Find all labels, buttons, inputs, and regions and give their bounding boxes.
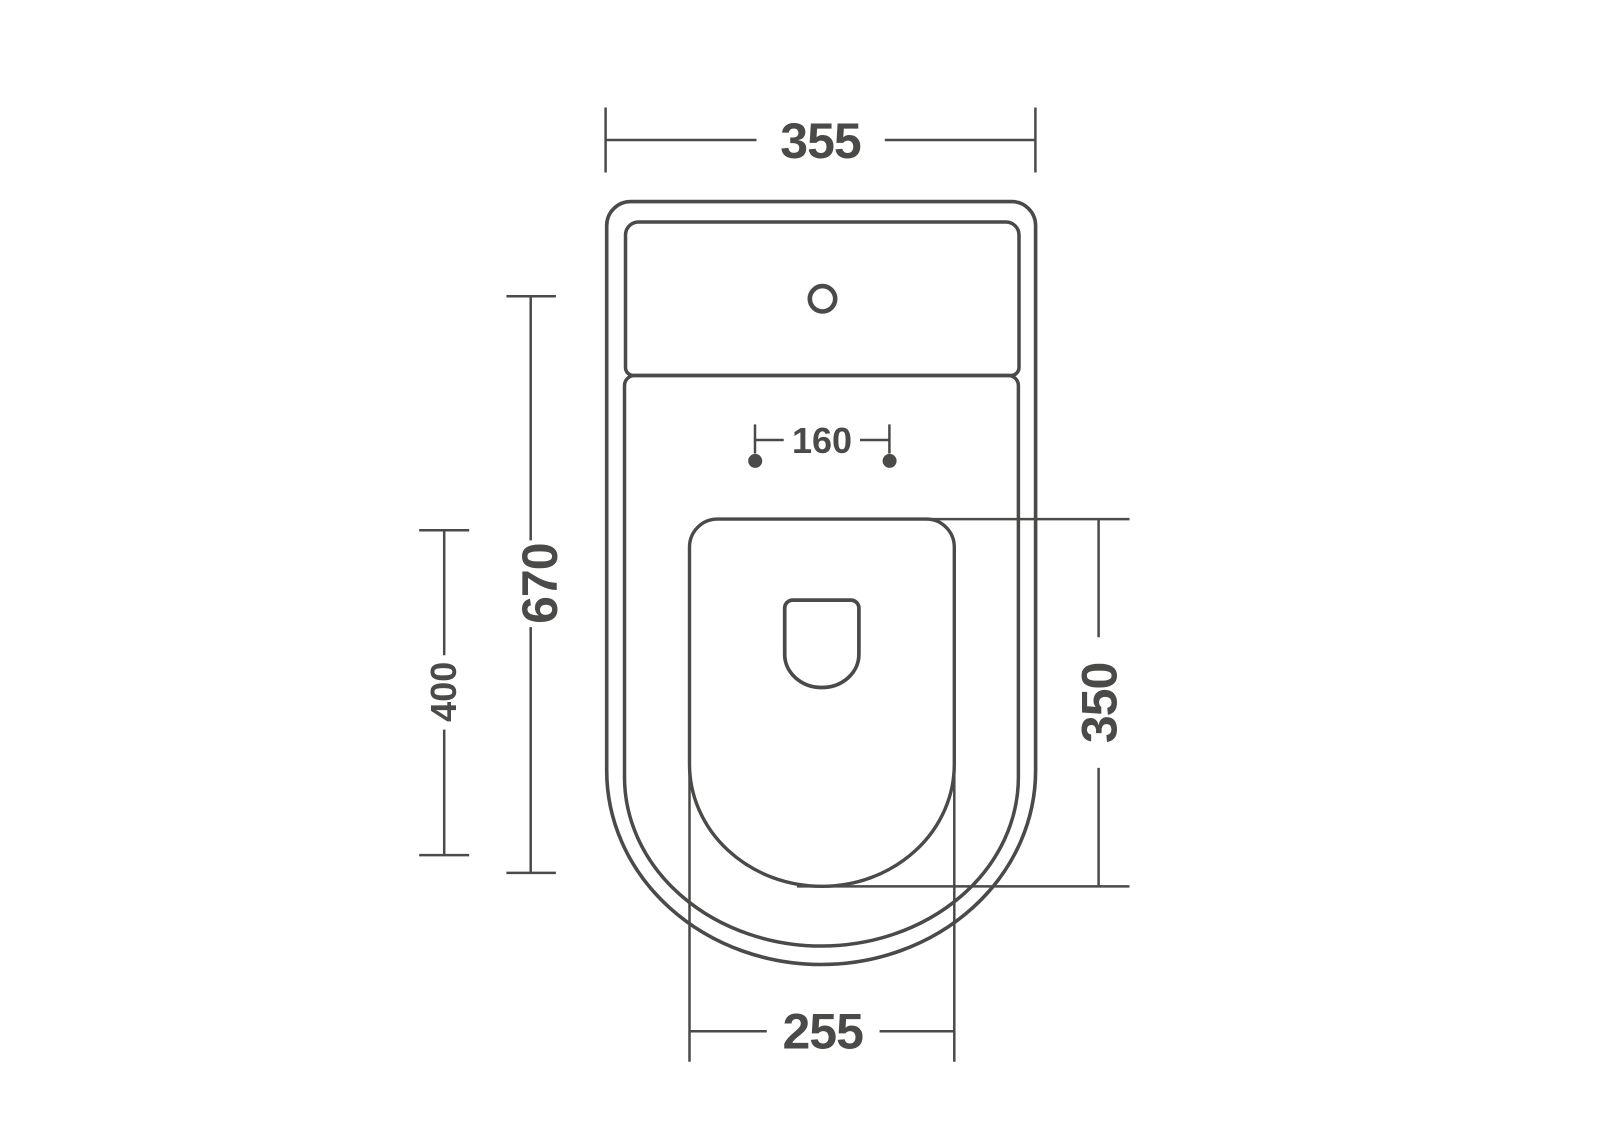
svg-text:355: 355 <box>780 113 861 169</box>
svg-text:670: 670 <box>512 543 568 623</box>
svg-text:160: 160 <box>792 420 852 461</box>
svg-text:350: 350 <box>1071 663 1127 743</box>
svg-text:255: 255 <box>782 1004 863 1060</box>
svg-text:400: 400 <box>423 662 464 722</box>
